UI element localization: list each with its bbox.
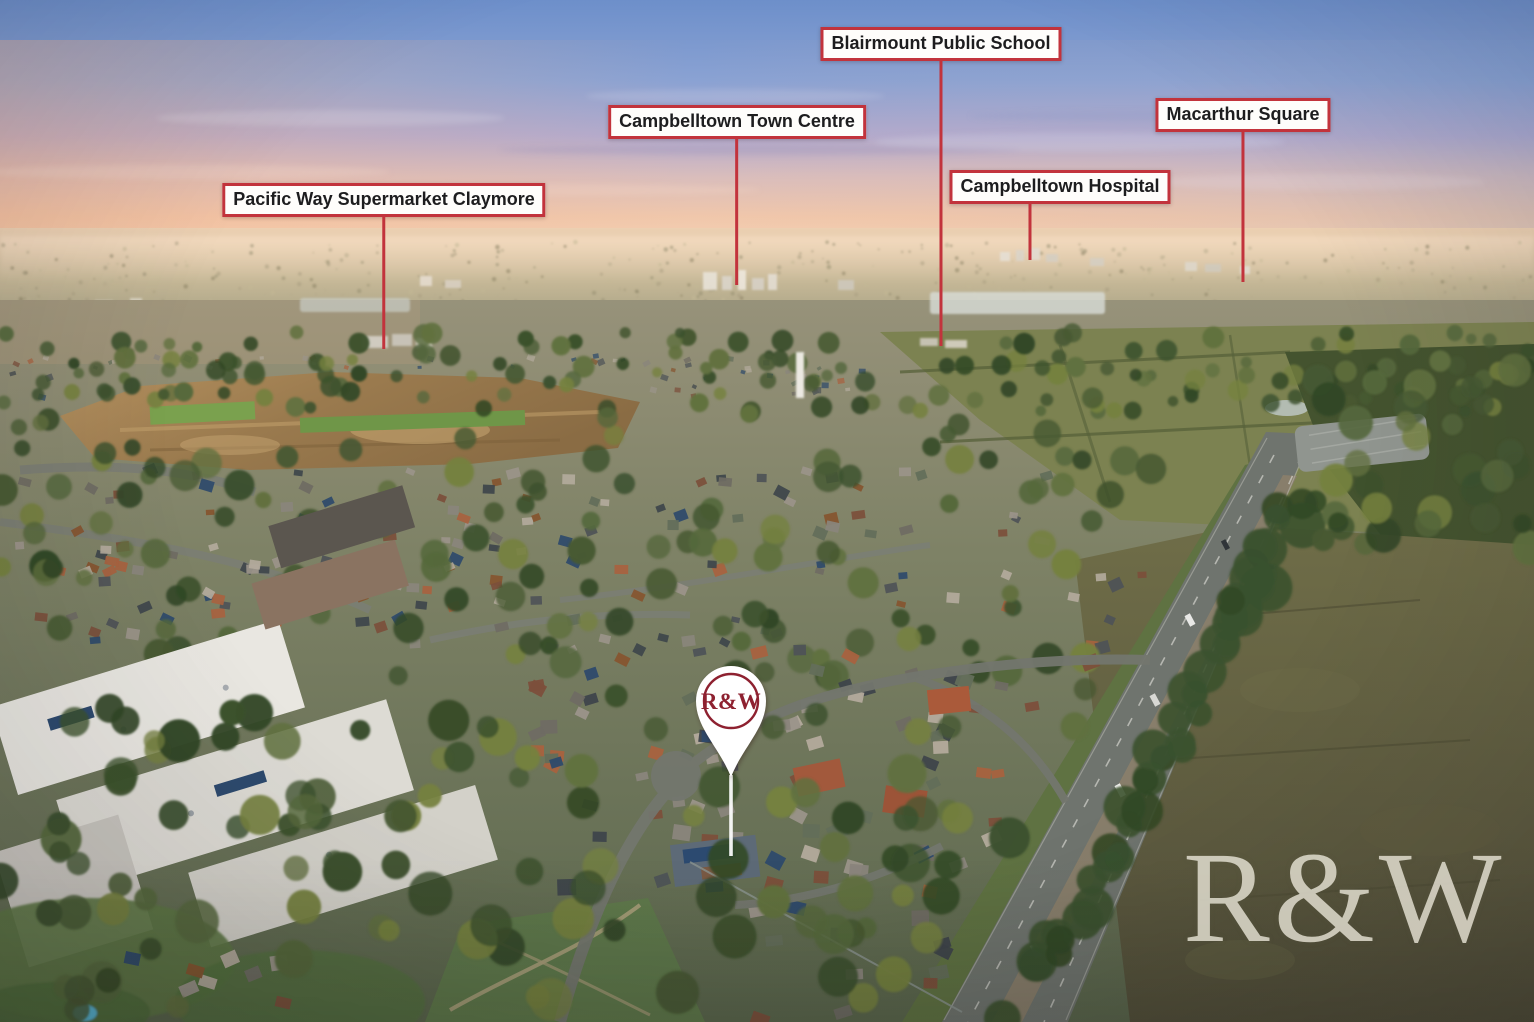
- tree: [158, 389, 170, 401]
- tree: [714, 387, 727, 400]
- tree: [1040, 393, 1053, 406]
- house-roof: [1096, 573, 1107, 581]
- tree: [837, 875, 873, 911]
- callout-label: Pacific Way Supermarket Claymore: [222, 183, 545, 217]
- tree: [1124, 402, 1142, 420]
- tree: [33, 415, 49, 431]
- tree: [215, 507, 235, 527]
- tree: [206, 360, 226, 380]
- tree: [758, 353, 776, 371]
- tree: [696, 877, 737, 918]
- distant-tree: [677, 291, 679, 293]
- tree: [1052, 350, 1067, 365]
- tree: [922, 437, 941, 456]
- tree: [620, 327, 631, 338]
- distant-tree: [28, 297, 30, 299]
- house-roof: [105, 497, 114, 504]
- tree: [144, 457, 165, 478]
- tree: [945, 445, 974, 474]
- tree: [466, 370, 477, 381]
- callout-campbelltown-hospital: Campbelltown Hospital: [949, 170, 1170, 260]
- tree: [565, 754, 599, 788]
- house-roof: [302, 356, 309, 362]
- tree: [757, 885, 790, 918]
- tree: [1156, 340, 1177, 361]
- water-tower: [796, 352, 804, 398]
- distant-tree: [1351, 256, 1353, 258]
- tree: [818, 957, 858, 997]
- tree: [1100, 362, 1114, 376]
- tree: [646, 568, 677, 599]
- tree: [1217, 587, 1245, 615]
- distant-tree: [592, 291, 596, 295]
- tree: [515, 745, 540, 770]
- callout-leader-line: [1028, 204, 1031, 260]
- tree: [882, 845, 909, 872]
- tree: [1019, 480, 1043, 504]
- tree: [255, 492, 271, 508]
- tree: [851, 396, 869, 414]
- house-roof: [98, 576, 111, 586]
- tree: [454, 427, 476, 449]
- distant-tree: [1398, 267, 1400, 269]
- tree: [519, 564, 544, 589]
- tree: [992, 355, 1012, 375]
- distant-tree: [175, 242, 179, 246]
- distant-tree: [211, 277, 215, 281]
- tree: [46, 474, 72, 500]
- distant-tree: [1208, 289, 1210, 291]
- house-roof: [718, 477, 732, 487]
- tree: [74, 368, 85, 379]
- tree: [835, 362, 847, 374]
- tree: [1498, 354, 1531, 387]
- tree: [286, 397, 306, 417]
- tree: [444, 457, 474, 487]
- tree: [1121, 790, 1163, 832]
- distant-tree: [1109, 274, 1111, 276]
- tree: [583, 445, 610, 472]
- tree: [1202, 327, 1224, 349]
- tree: [111, 707, 139, 735]
- distant-tree: [1449, 275, 1452, 278]
- tree: [938, 715, 961, 738]
- tree: [656, 971, 699, 1014]
- tree: [516, 858, 544, 886]
- house-roof: [946, 592, 960, 603]
- tree: [505, 364, 525, 384]
- house-roof: [765, 935, 783, 947]
- tree: [240, 795, 280, 835]
- tree: [911, 922, 943, 954]
- tree: [135, 340, 148, 353]
- tree: [1185, 389, 1199, 403]
- tree: [1074, 678, 1096, 700]
- tree: [1396, 411, 1416, 431]
- tree: [1061, 712, 1089, 740]
- tree: [526, 985, 550, 1009]
- distant-tree: [1143, 278, 1146, 281]
- tree: [323, 852, 363, 892]
- tree: [1125, 342, 1143, 360]
- tree: [675, 328, 685, 338]
- house-roof: [592, 832, 606, 842]
- tree: [175, 899, 219, 943]
- tree: [713, 616, 733, 636]
- tree: [1415, 510, 1442, 537]
- house-roof: [837, 378, 845, 384]
- house-roof: [976, 767, 992, 779]
- tree: [709, 349, 730, 370]
- house-roof: [732, 514, 743, 523]
- tree: [913, 403, 928, 418]
- house-roof: [294, 469, 303, 476]
- house-roof: [1137, 571, 1146, 578]
- house-roof: [100, 545, 111, 554]
- tree: [123, 377, 140, 394]
- tree: [791, 778, 820, 807]
- tree: [603, 919, 625, 941]
- tree: [928, 385, 949, 406]
- tree: [550, 646, 582, 678]
- distant-tree: [1114, 261, 1116, 263]
- tree: [942, 803, 973, 834]
- tree: [1052, 549, 1082, 579]
- tree: [1136, 454, 1166, 484]
- distant-tree: [35, 287, 37, 289]
- distant-tree: [1, 243, 5, 247]
- tree: [94, 442, 116, 464]
- tree: [484, 502, 504, 522]
- house-roof: [355, 617, 370, 627]
- house-roof: [522, 517, 533, 525]
- house-roof: [540, 720, 557, 734]
- distant-tree: [1411, 268, 1414, 271]
- tree: [1459, 405, 1471, 417]
- callout-leader-line: [383, 217, 386, 349]
- tree: [108, 873, 132, 897]
- house-roof: [15, 541, 24, 549]
- distant-tree: [78, 280, 82, 284]
- distant-tree: [1119, 269, 1123, 273]
- distant-tree: [213, 297, 215, 299]
- tree: [1312, 529, 1335, 552]
- distant-tree: [122, 264, 125, 267]
- tree: [287, 890, 321, 924]
- distant-tree: [1469, 277, 1472, 280]
- pin-shape: [696, 666, 766, 777]
- tree: [470, 904, 512, 946]
- distant-tree: [1518, 241, 1521, 244]
- distant-tree: [1148, 272, 1151, 275]
- tree: [1082, 387, 1103, 408]
- tree: [1066, 357, 1086, 377]
- distant-tree: [1521, 278, 1524, 281]
- tree: [97, 383, 112, 398]
- distant-tree: [214, 283, 216, 285]
- tree: [1241, 357, 1252, 368]
- callout-label: Campbelltown Hospital: [949, 170, 1170, 204]
- tree: [156, 619, 176, 639]
- tree: [892, 885, 914, 907]
- tree: [498, 539, 528, 569]
- distant-tree: [116, 263, 119, 266]
- tree: [1252, 563, 1277, 588]
- distant-tree: [1441, 280, 1445, 284]
- tree: [1182, 681, 1208, 707]
- house-roof: [483, 485, 495, 494]
- tree: [1001, 381, 1017, 397]
- callout-leader-line: [1241, 132, 1244, 282]
- tree: [276, 446, 298, 468]
- tree: [732, 632, 751, 651]
- tree: [760, 372, 776, 388]
- tree: [1338, 406, 1373, 441]
- tree: [1158, 702, 1191, 735]
- distant-tree: [110, 279, 114, 283]
- distant-tree: [37, 295, 40, 298]
- tree: [1055, 447, 1074, 466]
- distant-tree: [123, 247, 127, 251]
- tree: [519, 632, 542, 655]
- house-roof: [530, 596, 542, 605]
- tree: [848, 567, 879, 598]
- tree: [1185, 369, 1206, 390]
- property-location-pin: R&W: [678, 653, 788, 863]
- tree: [140, 938, 162, 960]
- distant-tree: [1204, 293, 1208, 297]
- tree: [97, 893, 129, 925]
- tree: [64, 975, 94, 1005]
- distant-tree: [695, 284, 699, 288]
- tree: [568, 537, 596, 565]
- tree: [124, 439, 140, 455]
- distant-tree: [1384, 248, 1386, 250]
- tree: [713, 915, 757, 959]
- tree: [817, 541, 840, 564]
- distant-tree: [118, 277, 121, 280]
- tree: [647, 535, 671, 559]
- tree: [40, 341, 55, 356]
- callout-label: Blairmount Public School: [820, 27, 1061, 61]
- distant-tree: [10, 266, 14, 270]
- distant-tree: [1250, 296, 1253, 299]
- house-roof: [34, 612, 47, 622]
- distant-tree: [211, 250, 214, 253]
- tree: [955, 356, 974, 375]
- house-roof: [667, 520, 678, 530]
- distant-tree: [55, 258, 58, 261]
- distant-tree: [185, 264, 188, 267]
- tree: [948, 414, 970, 436]
- distant-tree: [153, 290, 156, 293]
- tree: [389, 666, 408, 685]
- tree: [462, 524, 489, 551]
- tree: [1362, 370, 1387, 395]
- house-roof: [998, 529, 1007, 536]
- house-roof: [418, 366, 422, 369]
- tree: [166, 995, 189, 1018]
- distant-tree: [26, 251, 29, 254]
- tree: [60, 707, 90, 737]
- tree: [144, 730, 165, 751]
- tree: [1105, 843, 1135, 873]
- tree: [923, 877, 960, 914]
- tree: [493, 357, 507, 371]
- tree: [393, 613, 423, 643]
- tree: [220, 700, 245, 725]
- tree: [1470, 503, 1500, 533]
- tree: [1238, 367, 1255, 384]
- pin-pole: [729, 775, 733, 856]
- tree: [597, 407, 618, 428]
- house-roof: [281, 502, 294, 512]
- house-roof: [813, 871, 828, 884]
- tree: [256, 389, 273, 406]
- distant-tree: [1444, 291, 1446, 293]
- tree: [605, 685, 628, 708]
- house-roof: [707, 560, 717, 568]
- tree: [1466, 334, 1477, 345]
- tree: [934, 851, 962, 879]
- house-roof: [260, 356, 264, 360]
- tree: [1034, 420, 1062, 448]
- distant-tree: [153, 245, 155, 247]
- callout-leader-line: [735, 139, 738, 285]
- tree: [477, 716, 499, 738]
- tree: [68, 358, 79, 369]
- tree: [979, 451, 998, 470]
- tree: [855, 372, 875, 392]
- callout-pacific-way-supermarket-claymore: Pacific Way Supermarket Claymore: [222, 183, 545, 349]
- tree: [1272, 372, 1289, 389]
- distant-tree: [143, 272, 147, 276]
- distant-tree: [692, 295, 697, 300]
- tree: [134, 888, 157, 911]
- distant-tree: [1425, 245, 1429, 249]
- house-roof: [757, 474, 767, 482]
- tree: [1106, 402, 1122, 418]
- tree: [839, 465, 862, 488]
- distant-tree: [680, 294, 682, 296]
- tree: [1344, 450, 1370, 476]
- tree: [772, 330, 794, 352]
- house-roof: [899, 467, 911, 476]
- distant-tree: [93, 278, 95, 280]
- distant-tree: [573, 240, 578, 245]
- house-roof: [793, 645, 806, 656]
- distant-tree: [624, 289, 626, 291]
- tree: [170, 460, 201, 491]
- tree: [605, 608, 633, 636]
- distant-tree: [183, 284, 188, 289]
- tree: [418, 784, 442, 808]
- agency-watermark: R&W: [1183, 833, 1506, 963]
- tree: [1028, 530, 1056, 558]
- tree: [559, 377, 574, 392]
- tree: [1311, 337, 1326, 352]
- tree: [166, 585, 187, 606]
- tree: [940, 495, 958, 513]
- tree: [811, 396, 832, 417]
- distant-tree: [1503, 265, 1505, 267]
- house-roof: [415, 601, 427, 610]
- tree: [652, 367, 662, 377]
- tree: [284, 856, 309, 881]
- distant-tree: [1377, 283, 1381, 287]
- tree: [1081, 510, 1102, 531]
- tree: [814, 914, 854, 954]
- tree: [543, 376, 556, 389]
- tree: [967, 392, 983, 408]
- tree: [1206, 363, 1220, 377]
- house-roof: [822, 382, 829, 388]
- house-roof: [206, 509, 215, 515]
- tree: [1262, 394, 1280, 412]
- distant-tree: [1124, 272, 1127, 275]
- house-roof: [249, 560, 261, 570]
- aerial-photo: R&W Pacific Way Supermarket Claymore Cam…: [0, 0, 1534, 1022]
- tree: [391, 370, 403, 382]
- house-roof: [422, 586, 432, 594]
- tree: [347, 354, 358, 365]
- distant-tree: [14, 243, 17, 246]
- house-roof: [125, 628, 140, 641]
- house-roof: [593, 353, 599, 359]
- tree: [1133, 767, 1159, 793]
- tree: [693, 504, 720, 531]
- tree: [761, 515, 790, 544]
- tree: [1132, 730, 1173, 771]
- tree: [36, 900, 62, 926]
- tree: [378, 920, 399, 941]
- tree: [421, 540, 449, 568]
- tree: [159, 800, 189, 830]
- tree: [1513, 514, 1532, 533]
- distant-tree: [125, 289, 127, 291]
- distant-tree: [1151, 294, 1154, 297]
- callout-macarthur-square: Macarthur Square: [1155, 98, 1330, 282]
- house-roof: [259, 566, 270, 573]
- tree: [939, 358, 955, 374]
- tree: [1168, 396, 1179, 407]
- tree: [690, 393, 709, 412]
- tree: [803, 375, 820, 392]
- tree: [174, 382, 193, 401]
- distant-tree: [1410, 261, 1414, 265]
- tree: [42, 558, 63, 579]
- tree: [567, 786, 599, 818]
- tree: [1361, 493, 1392, 524]
- tree: [164, 338, 176, 350]
- tree: [1442, 414, 1463, 435]
- tree: [114, 347, 136, 369]
- house-roof: [132, 565, 145, 576]
- distant-tree: [125, 275, 127, 277]
- distant-tree: [1105, 287, 1110, 292]
- tree: [475, 400, 492, 417]
- house-roof: [1009, 512, 1018, 519]
- tree: [832, 802, 865, 835]
- tree: [1312, 382, 1346, 416]
- tree: [180, 350, 198, 368]
- tree: [962, 639, 979, 656]
- tree: [218, 387, 231, 400]
- tree: [417, 391, 430, 404]
- house-roof: [614, 565, 628, 574]
- tree: [1110, 446, 1139, 475]
- distant-tree: [22, 271, 26, 275]
